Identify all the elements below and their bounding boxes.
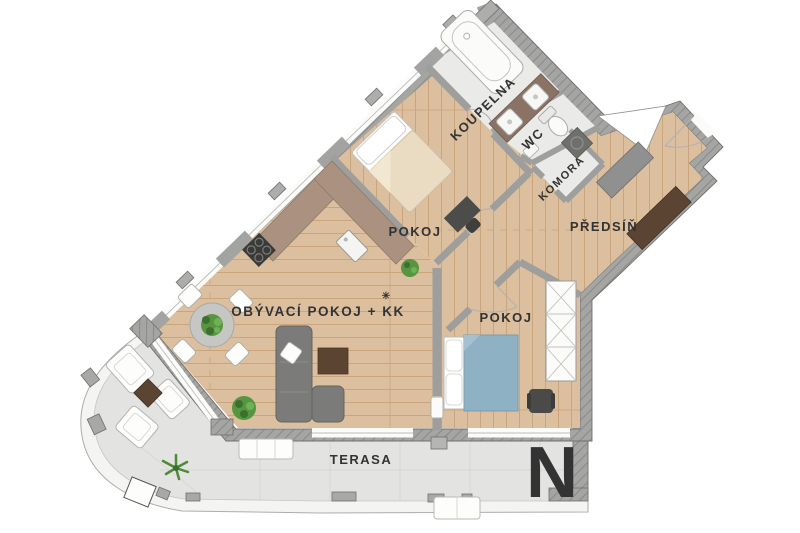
room-label-predsin: PŘEDSÍŇ <box>570 219 638 234</box>
terrace-bench-bottom <box>434 497 480 519</box>
bedroom-bed <box>444 335 518 411</box>
floor-plant-hall <box>401 259 419 277</box>
coffee-table <box>318 348 348 374</box>
room-label-terasa: TERASA <box>330 452 392 467</box>
corner-pillar-south <box>211 419 233 435</box>
floorplan-svg: ✳ <box>0 0 800 533</box>
terrace-door-stub <box>431 437 447 449</box>
terrace-bench-top <box>239 439 293 459</box>
room-label-pokoj-top: POKOJ <box>388 224 441 239</box>
pillow <box>446 340 462 371</box>
room-label-obyvaci-pokoj: OBÝVACÍ POKOJ + KK <box>231 304 404 319</box>
bedroom-wardrobe <box>546 281 576 381</box>
bedroom-chair <box>527 389 555 413</box>
watermark: N <box>526 433 578 513</box>
floor-plant-living <box>232 396 256 420</box>
room-label-pokoj-bottom: POKOJ <box>479 310 532 325</box>
living-bedroom-door <box>431 397 443 418</box>
floorplan-canvas: ✳ <box>0 0 800 533</box>
fridge-symbol: ✳ <box>382 291 391 302</box>
pillow <box>446 374 462 405</box>
table-plant <box>201 314 223 336</box>
